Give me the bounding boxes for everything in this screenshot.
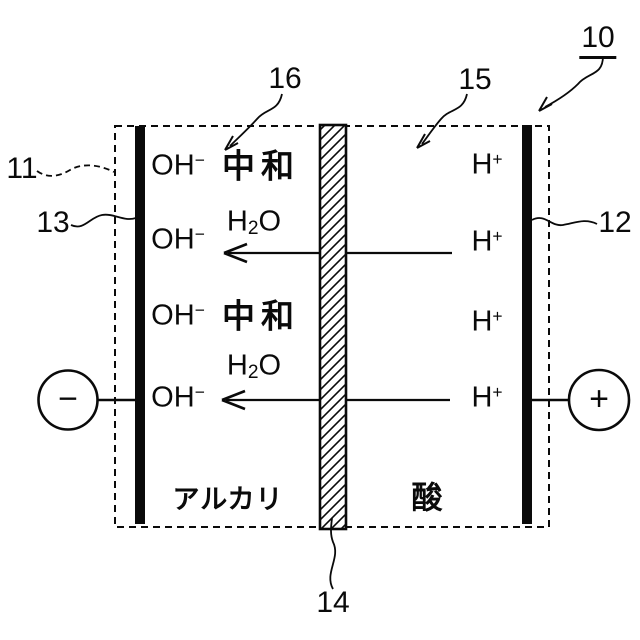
alkali-chamber-label: アルカリ bbox=[173, 487, 284, 514]
ref-label-16: 16 bbox=[268, 64, 301, 94]
leader-line-12 bbox=[532, 218, 597, 225]
patent-electrolysis-figure: 10 11 12 13 14 15 16 OH− OH− OH− OH− H+ … bbox=[0, 0, 640, 640]
negative-terminal-sign: − bbox=[58, 382, 78, 416]
hydrogen-ion-label: H+ bbox=[471, 308, 502, 337]
neutralization-label: 中和 bbox=[222, 300, 300, 333]
ref-label-11: 11 bbox=[6, 154, 37, 184]
neutralization-label: 中和 bbox=[222, 150, 300, 183]
leader-arrowhead-10 bbox=[539, 97, 552, 111]
hydroxide-ion-label: OH− bbox=[151, 152, 205, 181]
ion-exchange-membrane bbox=[320, 125, 346, 529]
hydrogen-ion-label: H+ bbox=[471, 384, 502, 413]
ref-label-15: 15 bbox=[458, 65, 491, 95]
acid-chamber-label: 酸 bbox=[412, 483, 443, 514]
hydroxide-ion-label: OH− bbox=[151, 226, 205, 255]
leader-line-13 bbox=[71, 215, 136, 227]
left-electrode-bar bbox=[135, 126, 145, 524]
ref-label-10: 10 bbox=[579, 23, 616, 59]
ref-label-14: 14 bbox=[316, 588, 349, 618]
hydrogen-ion-label: H+ bbox=[471, 151, 502, 180]
ref-label-12: 12 bbox=[598, 208, 631, 238]
hydroxide-ion-label: OH− bbox=[151, 384, 205, 413]
leader-line-15 bbox=[422, 94, 467, 144]
water-label: H2O bbox=[227, 352, 281, 383]
ref-label-13: 13 bbox=[36, 208, 69, 238]
water-label: H2O bbox=[227, 208, 281, 239]
leader-line-11 bbox=[37, 165, 114, 175]
leader-line-16 bbox=[230, 94, 282, 146]
leader-line-10 bbox=[545, 56, 603, 107]
right-electrode-bar bbox=[522, 125, 532, 524]
diagram-linework bbox=[0, 0, 640, 640]
hydrogen-ion-label: H+ bbox=[471, 228, 502, 257]
hydroxide-ion-label: OH− bbox=[151, 302, 205, 331]
positive-terminal-sign: + bbox=[589, 382, 609, 416]
